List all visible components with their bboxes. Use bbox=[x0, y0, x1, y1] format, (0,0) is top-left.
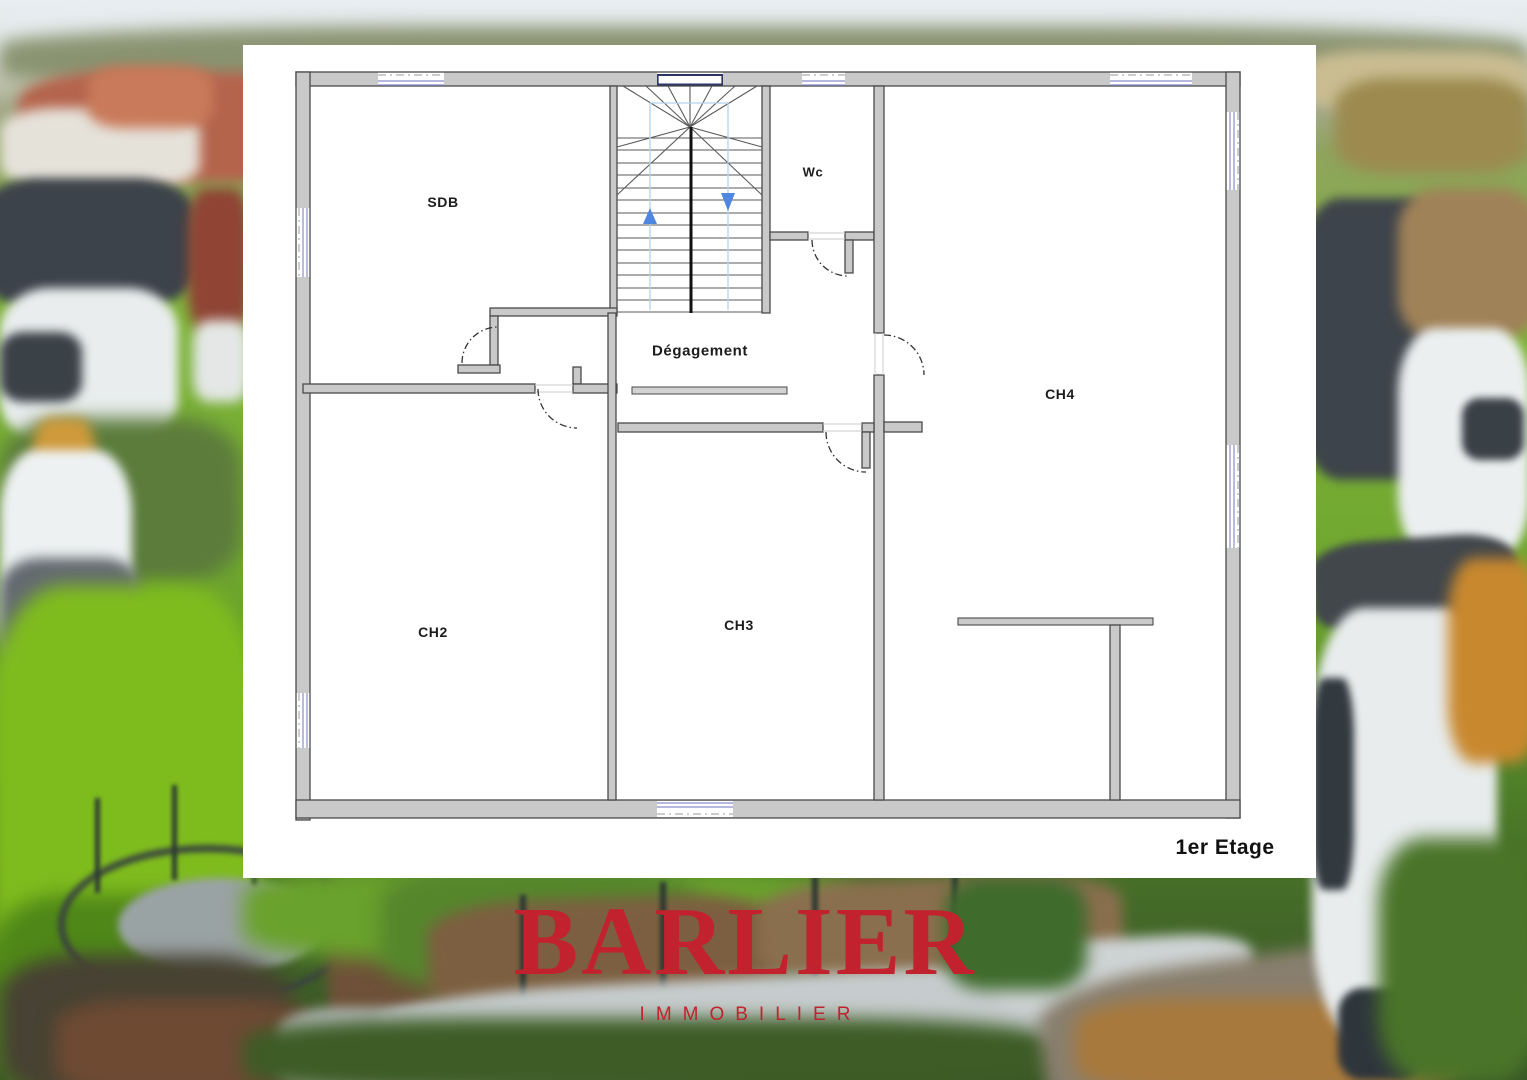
room-label-ch4: CH4 bbox=[1045, 386, 1075, 402]
stairs-up-arrow bbox=[643, 208, 657, 224]
window-ch4-right-lower bbox=[1227, 445, 1239, 548]
floor-plan-drawing bbox=[243, 45, 1316, 878]
window-sdb-top bbox=[378, 73, 444, 85]
agency-logo: BARLIER IMMOBILIER bbox=[514, 893, 977, 1026]
window-ch4-right-upper bbox=[1227, 112, 1239, 190]
door-arc-ch3 bbox=[826, 432, 866, 472]
closet-walls bbox=[958, 618, 1153, 800]
floor-title: 1er Etage bbox=[1175, 836, 1274, 860]
window-ch3-bottom bbox=[657, 801, 733, 817]
room-label-ch3: CH3 bbox=[724, 617, 754, 633]
floor-plan-panel: SDB Wc Dégagement CH2 CH3 CH4 1er Etage bbox=[243, 45, 1316, 878]
staircase bbox=[617, 86, 762, 313]
window-sdb-left bbox=[297, 208, 309, 277]
room-label-ch2: CH2 bbox=[418, 624, 448, 640]
stairs-down-arrow bbox=[721, 193, 735, 211]
window-ch4-top bbox=[1110, 73, 1192, 85]
inner-walls bbox=[303, 86, 922, 800]
agency-logo-name: BARLIER bbox=[514, 893, 977, 990]
door-arc-wc bbox=[812, 240, 848, 276]
door-arc-ch2 bbox=[538, 389, 577, 428]
agency-logo-subtitle: IMMOBILIER bbox=[525, 1004, 977, 1026]
screenshot-root: SDB Wc Dégagement CH2 CH3 CH4 1er Etage … bbox=[0, 0, 1527, 1080]
room-label-sdb: SDB bbox=[427, 194, 458, 210]
window-wc-top bbox=[802, 73, 845, 85]
room-label-degagement: Dégagement bbox=[652, 343, 748, 360]
room-label-wc: Wc bbox=[803, 165, 824, 180]
window-ch2-left bbox=[297, 693, 309, 748]
corridor-half-wall bbox=[632, 387, 787, 394]
window-stairs-top bbox=[657, 73, 723, 85]
door-arc-ch4 bbox=[884, 335, 924, 375]
